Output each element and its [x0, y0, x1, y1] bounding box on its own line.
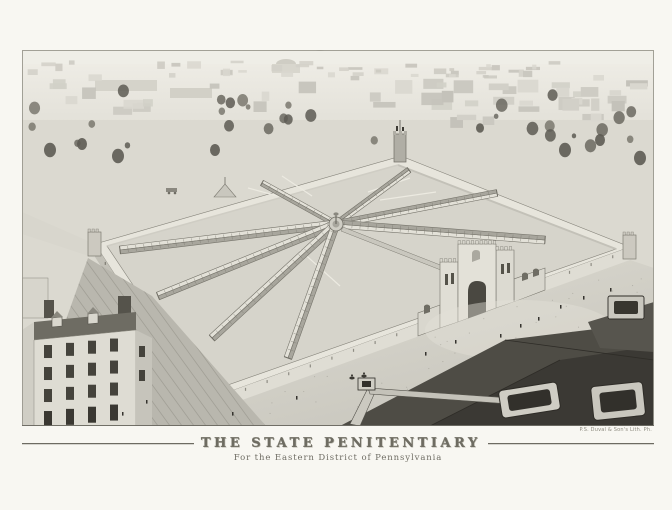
battlement: [509, 247, 512, 250]
bg-building: [157, 61, 165, 68]
figure: [232, 412, 234, 416]
street-stipple: [641, 278, 642, 279]
window: [66, 365, 74, 378]
bg-building: [562, 99, 579, 111]
battlement: [631, 232, 633, 235]
tree: [596, 123, 607, 136]
window: [44, 367, 52, 380]
window: [110, 339, 118, 352]
tree: [88, 120, 95, 128]
wing-gable: [545, 236, 546, 244]
street-stipple: [440, 344, 441, 345]
street-stipple: [632, 285, 633, 286]
street-stipple: [428, 368, 429, 369]
street-stipple: [637, 292, 638, 293]
bg-building: [262, 92, 270, 101]
bg-building: [299, 61, 313, 65]
bg-building: [82, 87, 96, 98]
wall-pilaster: [267, 380, 268, 383]
battlement: [458, 241, 461, 244]
window: [66, 343, 74, 356]
tree: [548, 89, 558, 101]
battlement: [484, 241, 487, 244]
bg-building: [573, 91, 581, 97]
street-stipple: [555, 316, 556, 317]
tree: [285, 102, 291, 109]
battlement: [496, 247, 499, 250]
window: [110, 361, 118, 374]
bg-building: [69, 60, 75, 64]
tree: [112, 149, 124, 163]
tree: [545, 129, 556, 142]
bg-building: [348, 67, 362, 70]
tree: [284, 114, 293, 124]
bg-building: [437, 82, 447, 87]
bg-building: [518, 106, 539, 111]
street-stipple: [572, 293, 573, 294]
bg-building: [41, 62, 55, 66]
tree: [476, 123, 484, 133]
tree: [28, 122, 35, 130]
bg-building: [483, 116, 495, 125]
tree: [305, 109, 316, 122]
wall-pilaster: [245, 388, 246, 391]
bg-building: [238, 70, 247, 73]
battlement: [444, 259, 447, 262]
bg-building: [210, 84, 220, 89]
battlement: [480, 241, 483, 244]
bg-building: [339, 67, 349, 71]
tree: [210, 144, 220, 156]
bg-building: [169, 73, 175, 78]
street-stipple: [598, 280, 599, 281]
bg-building: [612, 101, 625, 111]
bg-building: [476, 71, 486, 74]
street-stipple: [566, 306, 567, 307]
battlement: [500, 247, 503, 250]
street-stipple: [442, 361, 443, 362]
bg-building: [124, 100, 145, 109]
door: [110, 405, 118, 421]
tree: [224, 120, 234, 131]
bg-building: [449, 74, 456, 77]
figure: [455, 340, 457, 344]
smudge-mark: [314, 48, 326, 51]
bg-building: [523, 71, 532, 77]
door: [66, 409, 74, 425]
bg-building: [519, 101, 533, 106]
bg-building: [171, 63, 180, 67]
tree: [226, 97, 235, 108]
tree: [613, 111, 624, 124]
bg-building: [254, 101, 267, 112]
tree: [527, 122, 539, 135]
bg-building: [143, 99, 153, 106]
street-stipple: [327, 376, 328, 377]
bg-building: [581, 87, 599, 97]
bg-building: [50, 83, 67, 89]
figure: [146, 400, 148, 404]
bg-building: [89, 74, 102, 81]
tree: [237, 94, 248, 106]
battlement: [449, 259, 452, 262]
battlement: [92, 229, 94, 232]
wall-pilaster: [353, 349, 354, 352]
tree: [264, 123, 274, 134]
wall-pilaster: [288, 372, 289, 375]
bg-building: [411, 74, 419, 77]
bg-building: [328, 72, 335, 77]
tree: [371, 136, 378, 144]
bg-building: [486, 64, 491, 67]
tree: [626, 106, 636, 117]
street-stipple: [568, 298, 569, 299]
bg-building: [532, 65, 536, 70]
door: [44, 411, 52, 427]
street-stipple: [578, 327, 579, 328]
window: [66, 387, 74, 400]
wall-pilaster: [331, 357, 332, 360]
battlement: [88, 229, 90, 232]
street-stipple: [269, 413, 270, 414]
bg-building: [492, 65, 500, 70]
window: [88, 341, 96, 354]
horse-rider: [363, 372, 365, 374]
street-stipple: [515, 337, 516, 338]
illustration: [0, 48, 654, 431]
bg-building: [317, 67, 324, 70]
street-stipple: [447, 341, 448, 342]
bg-building: [271, 65, 282, 71]
bg-building: [457, 115, 476, 120]
bg-building: [518, 80, 539, 93]
battlement: [623, 232, 625, 235]
bg-building: [66, 96, 78, 104]
tree: [572, 133, 576, 138]
street-stipple: [516, 306, 517, 307]
wall-pilaster: [591, 263, 592, 266]
battlement: [453, 259, 456, 262]
tree: [496, 99, 508, 112]
wall-pilaster: [612, 255, 613, 258]
window: [110, 383, 118, 396]
bg-building: [552, 82, 570, 88]
street-stipple: [407, 389, 408, 390]
battlement: [467, 241, 470, 244]
tree: [634, 151, 646, 165]
battlement: [96, 229, 98, 232]
door: [88, 407, 96, 423]
bg-building: [299, 82, 316, 94]
lithograph-scene: [0, 0, 672, 510]
horse-rider: [351, 374, 353, 376]
bg-building: [370, 92, 381, 101]
tree: [125, 142, 130, 148]
window: [88, 363, 96, 376]
bg-building: [591, 114, 602, 122]
street-stipple: [315, 401, 316, 402]
bg-building: [549, 61, 561, 64]
window: [44, 389, 52, 402]
bg-building: [231, 61, 244, 64]
battlement: [476, 241, 479, 244]
street-stipple: [552, 300, 553, 301]
street-stipple: [314, 376, 315, 377]
figure: [610, 288, 612, 292]
tree: [246, 104, 251, 109]
bg-building: [556, 88, 569, 97]
battlement: [505, 247, 508, 250]
horse-rider: [349, 377, 354, 380]
bg-building: [630, 83, 647, 89]
bg-building: [187, 61, 201, 68]
figure: [520, 324, 522, 328]
bg-building: [405, 64, 417, 68]
bg-building: [449, 68, 454, 71]
bg-building: [465, 100, 478, 106]
bg-building: [593, 75, 604, 81]
bg-long-building: [170, 88, 212, 98]
bg-building: [610, 90, 622, 95]
figure: [296, 396, 298, 400]
bg-building: [442, 91, 454, 103]
battlement: [440, 259, 443, 262]
battlement: [627, 232, 629, 235]
bg-building: [421, 93, 443, 105]
bg-building: [509, 70, 520, 73]
battlement: [471, 241, 474, 244]
wall-pilaster: [396, 333, 397, 336]
tree: [217, 95, 226, 105]
figure: [538, 317, 540, 321]
tree: [595, 134, 605, 146]
street-stipple: [303, 391, 304, 392]
bg-building: [281, 71, 293, 77]
street-stipple: [381, 383, 382, 384]
wall-pilaster: [310, 364, 311, 367]
figure: [583, 296, 585, 300]
tree: [44, 143, 56, 157]
tree: [29, 102, 40, 115]
tree: [585, 139, 596, 152]
bg-building: [591, 98, 599, 110]
figure: [560, 305, 562, 309]
window: [88, 385, 96, 398]
figure: [425, 352, 427, 356]
scanned-lithograph-page: P.S. Duval & Son's Lith. Ph. THE STATE P…: [0, 0, 672, 510]
street-stipple: [271, 402, 272, 403]
tree: [118, 85, 129, 98]
bg-building: [483, 75, 489, 78]
street-stipple: [483, 318, 484, 319]
bg-building: [373, 102, 395, 108]
bg-building: [223, 69, 230, 76]
street-stipple: [612, 290, 613, 291]
wall-pilaster: [105, 262, 106, 265]
corner-tower: [88, 229, 101, 256]
street-stipple: [285, 391, 286, 392]
bg-building: [55, 64, 62, 71]
tree: [559, 143, 571, 157]
bg-building: [519, 70, 524, 77]
bg-building: [351, 76, 360, 80]
bg-building: [489, 83, 509, 90]
street-stipple: [454, 353, 455, 354]
tree: [77, 138, 87, 150]
figure: [500, 334, 502, 338]
bg-building: [376, 70, 381, 73]
horse-rider: [361, 375, 366, 378]
wall-pilaster: [375, 341, 376, 344]
bg-building: [395, 80, 412, 94]
street-stipple: [406, 387, 407, 388]
battlement: [493, 241, 496, 244]
wall-pilaster: [569, 271, 570, 274]
tree: [627, 136, 634, 144]
street-stipple: [435, 337, 436, 338]
street-stipple: [536, 322, 537, 323]
bg-building: [353, 72, 364, 76]
bg-building: [434, 68, 446, 74]
bg-building: [28, 69, 38, 75]
corner-tower: [623, 232, 636, 259]
window: [44, 345, 52, 358]
battlement: [462, 241, 465, 244]
battlement: [489, 241, 492, 244]
tree: [219, 108, 226, 115]
tree: [494, 114, 499, 119]
bg-building: [454, 80, 473, 93]
street-stipple: [469, 333, 470, 334]
figure: [122, 412, 124, 416]
